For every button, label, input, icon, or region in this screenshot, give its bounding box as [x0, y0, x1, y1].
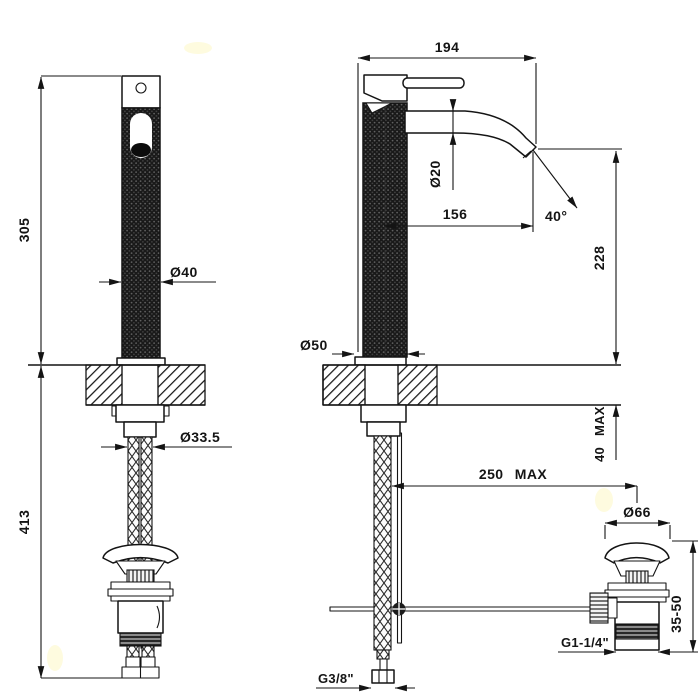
side-hose-stem — [380, 659, 387, 670]
dim-35-50: 35-50 — [668, 541, 698, 652]
side-drain — [590, 543, 669, 650]
dim-label-height-above: 305 — [16, 218, 32, 243]
dim-label-base-diameter: Ø50 — [300, 337, 328, 353]
dim-label-total-depth: 194 — [435, 39, 460, 55]
front-hose-end-right — [142, 646, 154, 657]
side-hose-end — [377, 650, 389, 659]
dim-40-max: 40 MAX — [592, 405, 616, 462]
front-adapter — [124, 422, 156, 437]
front-faucet-body — [117, 76, 165, 365]
side-drain-thread — [616, 624, 658, 639]
side-drain-spline — [626, 571, 648, 583]
dim-label-hose-diameter: Ø33.5 — [180, 429, 220, 445]
side-drain-rod-connector — [590, 593, 608, 623]
side-drain-cap — [605, 543, 669, 563]
front-drain-body — [118, 601, 163, 633]
dim-label-height-below: 413 — [16, 510, 32, 535]
side-base-plate — [355, 357, 406, 365]
side-locknut — [361, 405, 406, 422]
front-view: 305 413 Ø40 Ø33.5 — [16, 76, 232, 678]
dim-label-drain-height-range: 35-50 — [668, 595, 684, 633]
side-view: 194 Ø20 156 40° 228 40 MAX — [300, 39, 698, 688]
side-lever — [403, 78, 464, 88]
front-drain-spline — [127, 570, 154, 582]
side-hose-nut — [372, 670, 394, 683]
front-drain — [103, 545, 178, 679]
front-drain-flange-2 — [108, 589, 173, 596]
dim-label-spout-angle: 40° — [545, 208, 567, 224]
dim-label-drain-thread: G1-1/4" — [561, 635, 609, 650]
front-base-plate — [117, 358, 165, 365]
front-deck-hatch-left — [86, 365, 122, 405]
front-undermount — [112, 405, 169, 437]
side-undermount — [361, 405, 406, 436]
dim-supply-thread: G3/8" — [316, 671, 415, 688]
dim-label-supply-thread: G3/8" — [318, 671, 354, 686]
side-drain-flange-2 — [605, 590, 669, 597]
dim-label-drain-offset: 250 MAX — [479, 466, 547, 482]
dim-label-spout-reach: 156 — [443, 206, 468, 222]
side-hose-braid — [374, 436, 391, 650]
front-connector-right — [141, 657, 155, 667]
front-locknut — [116, 405, 164, 422]
front-spout-opening — [131, 143, 151, 157]
side-spout — [405, 111, 536, 157]
side-drain-connector-collar — [608, 598, 617, 618]
front-drain-flange-1 — [111, 582, 170, 589]
dim-228: 228 — [538, 149, 622, 364]
side-popup-linkage — [330, 433, 592, 643]
dim-hose-diameter: Ø33.5 — [101, 429, 232, 447]
front-connector-left — [126, 657, 140, 667]
dim-label-drain-cap-diameter: Ø66 — [623, 504, 651, 520]
front-drain-thread — [120, 633, 161, 646]
dim-drain-cap-diameter: Ø66 — [605, 504, 670, 539]
dim-label-body-diameter: Ø40 — [170, 264, 198, 280]
popup-horizontal-rod — [330, 607, 592, 611]
front-deck-hatch-right — [158, 365, 205, 405]
dim-spout-angle: 40° — [533, 150, 577, 224]
side-adapter — [367, 422, 400, 436]
front-deck — [28, 365, 205, 405]
dim-305: 305 — [16, 76, 121, 364]
side-drain-flange-1 — [608, 583, 666, 590]
side-handle-block — [364, 75, 407, 101]
front-hose-end-left — [127, 646, 139, 657]
dim-label-spout-diameter: Ø20 — [427, 160, 443, 188]
side-deck — [323, 365, 621, 405]
side-deck-hatch-left — [323, 365, 365, 405]
dim-label-spout-height: 228 — [591, 246, 607, 271]
dim-label-deck-thickness: 40 MAX — [592, 406, 607, 462]
side-deck-hatch-right — [398, 365, 437, 405]
drawing-svg: 305 413 Ø40 Ø33.5 — [0, 0, 700, 700]
front-cap-button — [136, 83, 146, 93]
technical-drawing-canvas: 305 413 Ø40 Ø33.5 — [0, 0, 700, 700]
